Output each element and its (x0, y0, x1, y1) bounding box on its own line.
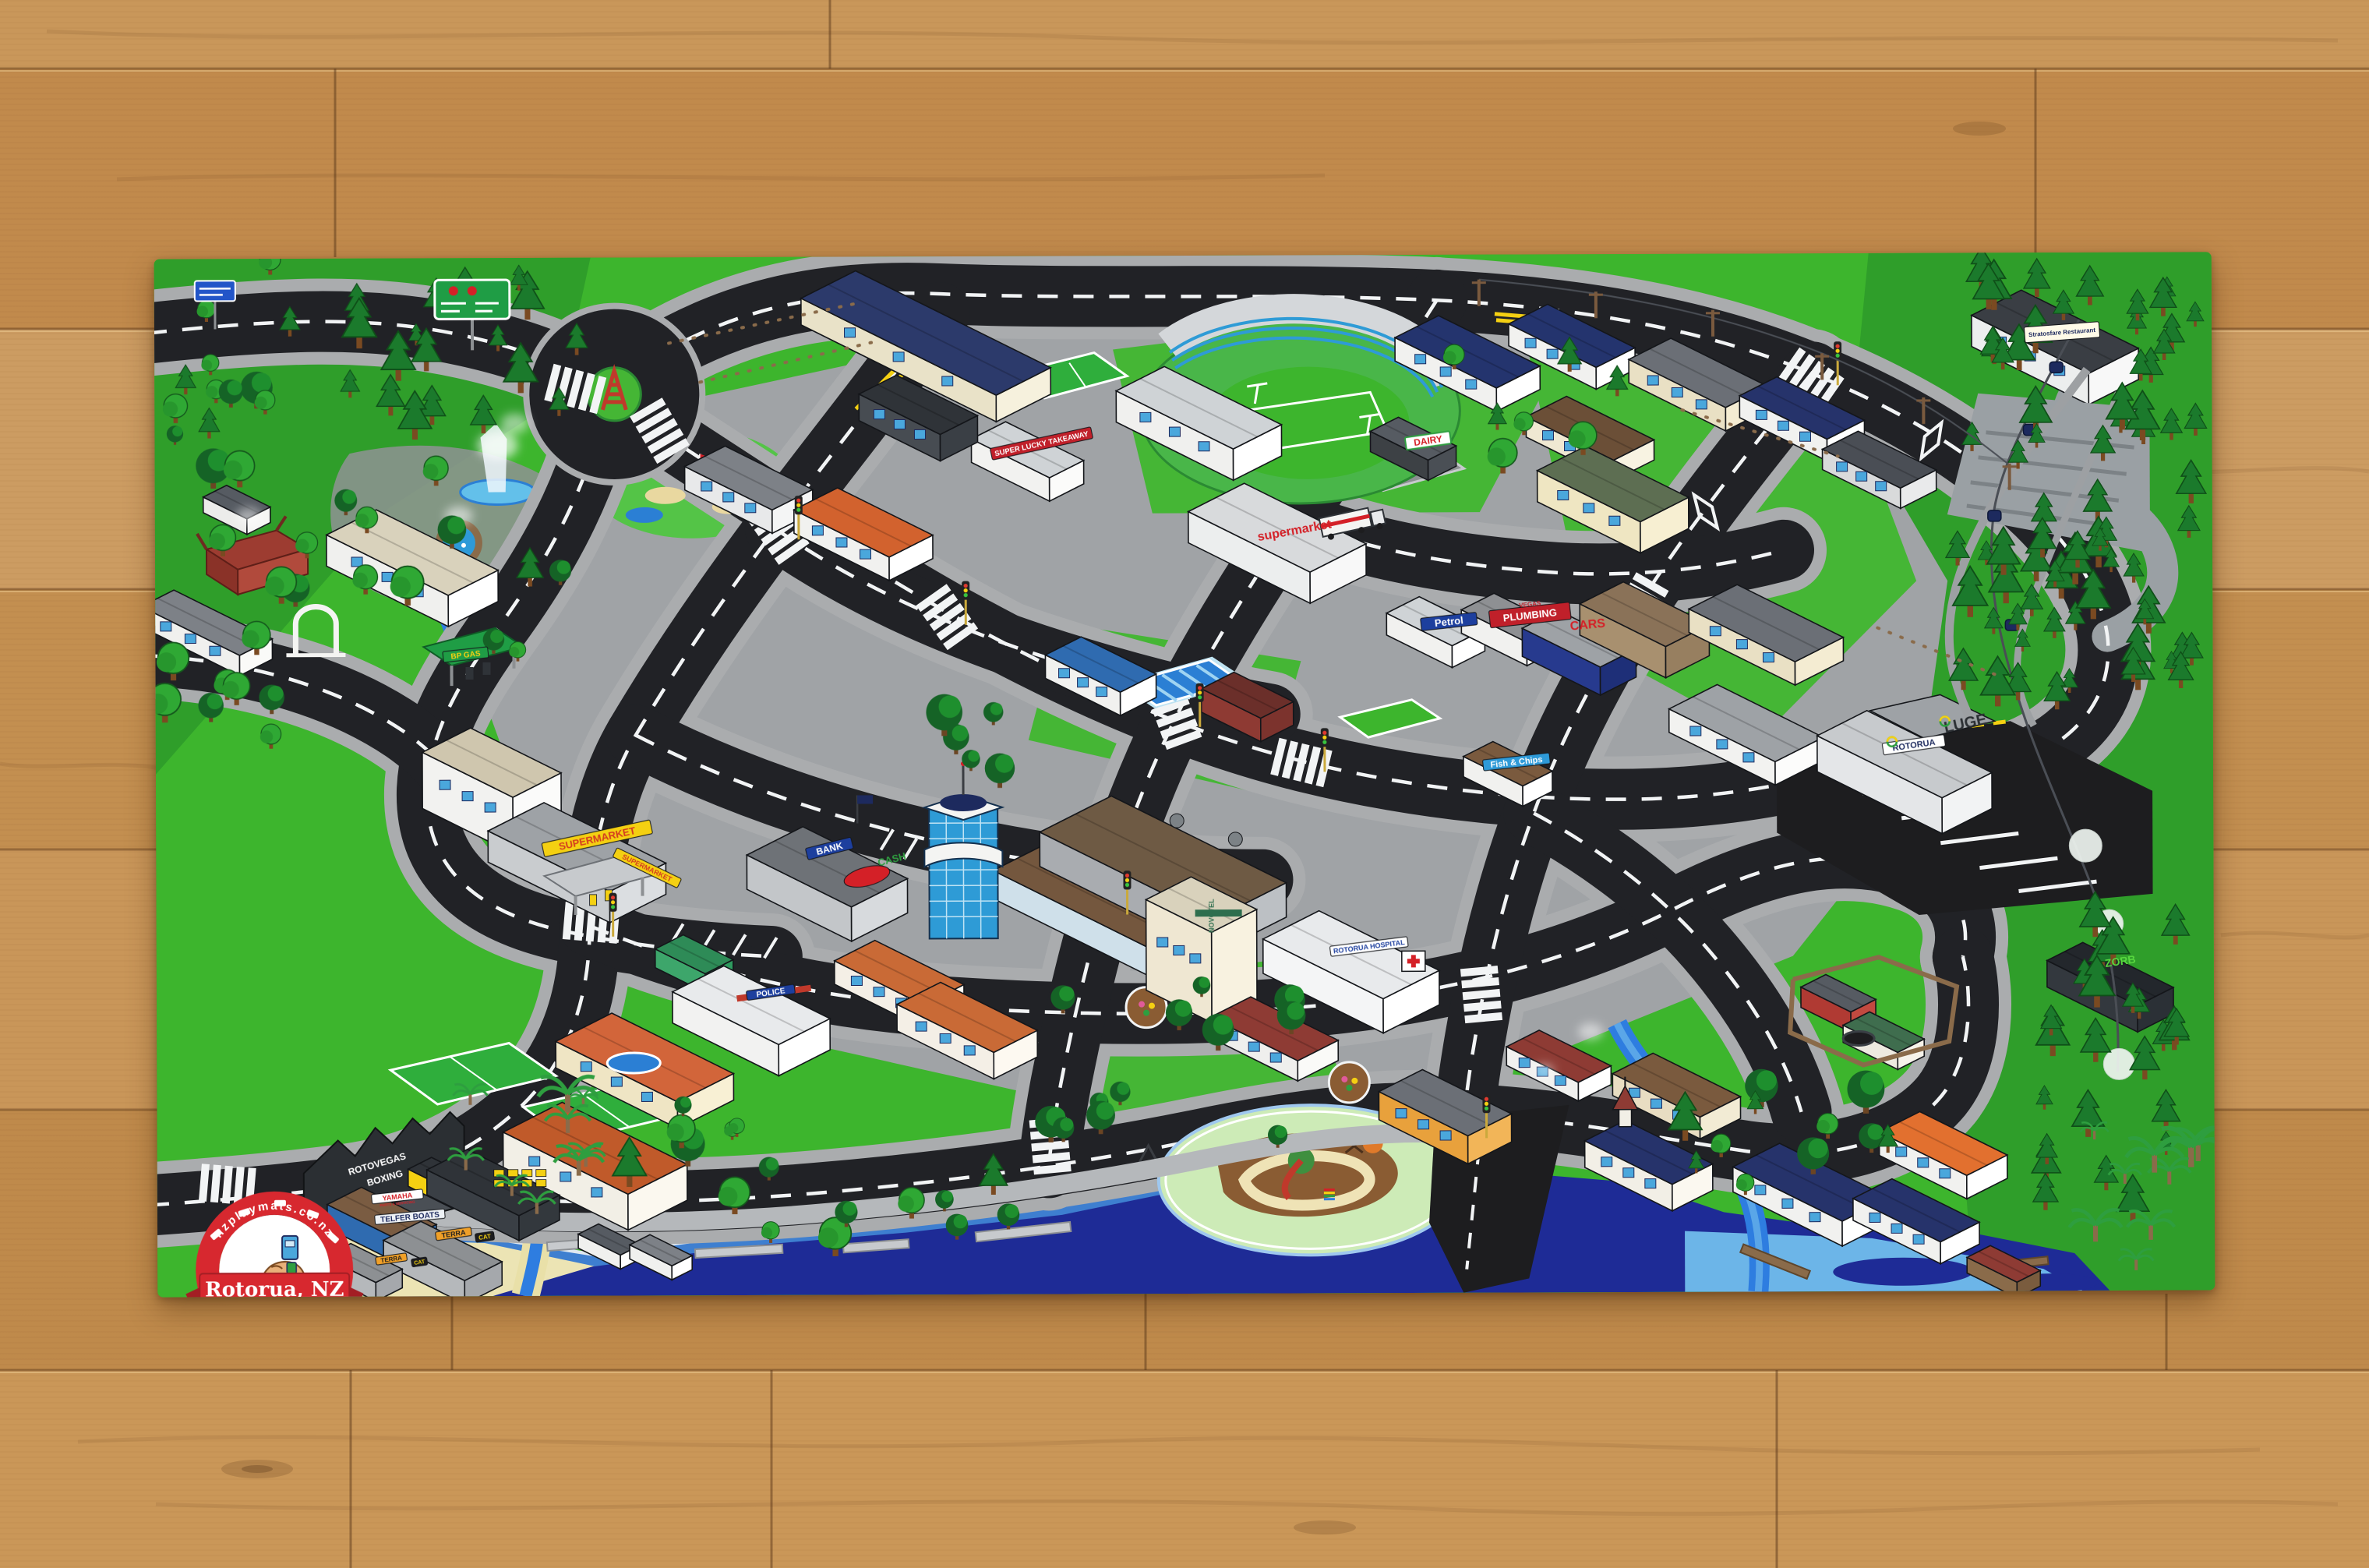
flower-island-1 (1329, 1062, 1369, 1103)
trampoline-icon (1843, 1031, 1874, 1045)
novotel-sign: NOVOTEL (1208, 899, 1216, 933)
photo-of-play-mat-on-wood-floor: { "mat": { "brand": { "url": "nzplaymats… (0, 0, 2369, 1568)
cat-sign-2: CAT (411, 1257, 428, 1267)
novotel-sign-text: NOVOTEL (1208, 899, 1216, 933)
logo-location-banner: Rotorua, NZ (185, 1273, 363, 1298)
rotorua-play-mat: DAIRYsupermarketSUPERMARKETSUPERMARKETPe… (154, 252, 2215, 1297)
logo-location-text: Rotorua, NZ (205, 1278, 344, 1298)
